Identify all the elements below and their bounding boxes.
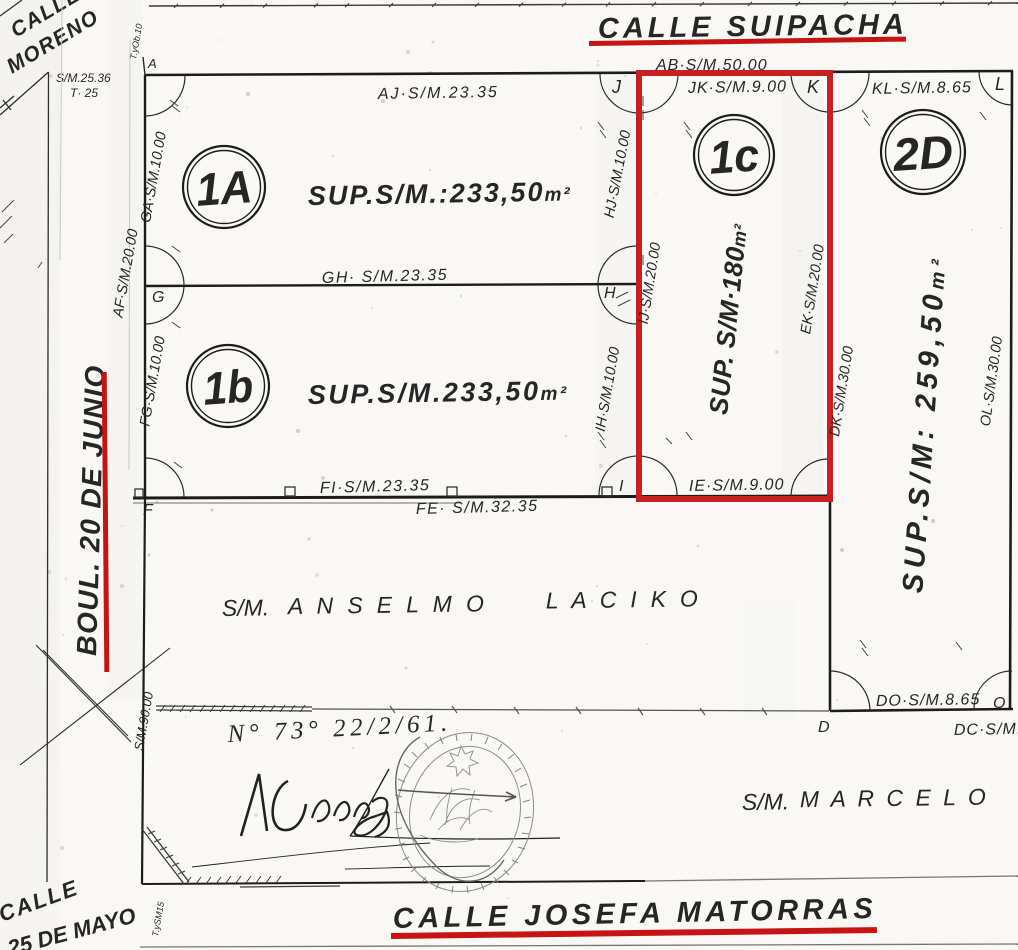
svg-text:1b: 1b bbox=[201, 359, 255, 414]
svg-text:KL·S/M.8.65: KL·S/M.8.65 bbox=[872, 79, 972, 98]
svg-text:SUP.S/M.:233,50m²: SUP.S/M.:233,50m² bbox=[308, 176, 572, 211]
svg-text:1c: 1c bbox=[707, 128, 761, 183]
svg-text:G: G bbox=[152, 289, 164, 306]
svg-text:I: I bbox=[619, 478, 624, 495]
svg-text:S/M.25.36: S/M.25.36 bbox=[56, 71, 111, 85]
svg-text:L: L bbox=[995, 74, 1005, 94]
svg-text:H: H bbox=[604, 285, 616, 302]
svg-text:IE·S/M.9.00: IE·S/M.9.00 bbox=[689, 476, 785, 495]
svg-text:K: K bbox=[807, 77, 820, 97]
svg-text:JK·S/M.9.00: JK·S/M.9.00 bbox=[687, 78, 787, 97]
svg-text:S/M.: S/M. bbox=[222, 594, 270, 621]
svg-text:D: D bbox=[818, 719, 830, 736]
svg-text:SUP.S/M.233,50m²: SUP.S/M.233,50m² bbox=[308, 375, 569, 410]
svg-text:FI·S/M.23.35: FI·S/M.23.35 bbox=[320, 477, 431, 497]
svg-text:O: O bbox=[993, 695, 1005, 712]
svg-text:AJ·S/M.23.35: AJ·S/M.23.35 bbox=[377, 84, 499, 103]
svg-text:2D: 2D bbox=[890, 125, 954, 181]
svg-text:FE· S/M.32.35: FE· S/M.32.35 bbox=[416, 498, 539, 518]
svg-text:A: A bbox=[147, 56, 157, 71]
svg-text:GH· S/M.23.35: GH· S/M.23.35 bbox=[322, 267, 449, 287]
svg-text:1A: 1A bbox=[194, 160, 253, 216]
svg-text:S/M.: S/M. bbox=[742, 788, 790, 815]
svg-text:DO·S/M.8.65: DO·S/M.8.65 bbox=[876, 691, 981, 710]
svg-text:T· 25: T· 25 bbox=[70, 86, 98, 100]
svg-text:J: J bbox=[611, 77, 622, 97]
svg-text:DC·S/M.4: DC·S/M.4 bbox=[954, 721, 1018, 739]
